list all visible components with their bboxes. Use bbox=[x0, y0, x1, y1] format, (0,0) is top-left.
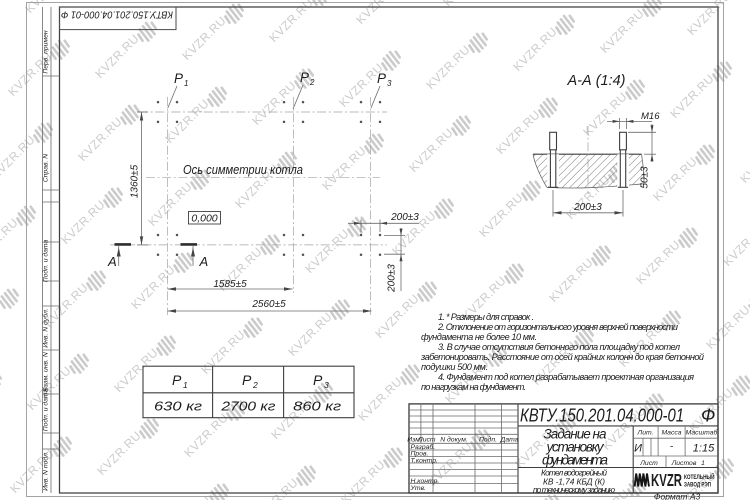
svg-text:KVZR.RU: KVZR.RU bbox=[720, 219, 750, 269]
svg-text:M16: M16 bbox=[641, 111, 660, 122]
svg-text:860 кг: 860 кг bbox=[293, 399, 342, 414]
svg-text:KVZR.RU: KVZR.RU bbox=[546, 255, 596, 305]
svg-text:ЗАВОД РЭП: ЗАВОД РЭП bbox=[684, 482, 711, 489]
svg-text:KVZR.RU: KVZR.RU bbox=[650, 154, 700, 204]
svg-text:фундамента: фундамента bbox=[542, 453, 608, 468]
svg-text:КВТУ.150.201.04.000-01: КВТУ.150.201.04.000-01 bbox=[520, 405, 684, 425]
svg-text:N докум.: N докум. bbox=[440, 435, 468, 443]
svg-text:Дата: Дата bbox=[500, 436, 519, 443]
svg-text:KVZR.RU: KVZR.RU bbox=[406, 125, 456, 175]
svg-text:1: 1 bbox=[701, 460, 705, 467]
svg-text:KVZR.RU: KVZR.RU bbox=[633, 237, 683, 287]
svg-text:KVZR.RU: KVZR.RU bbox=[684, 0, 734, 38]
svg-text:KVZR.RU: KVZR.RU bbox=[58, 197, 108, 247]
svg-text:КОТЕЛЬНЫЙ: КОТЕЛЬНЫЙ bbox=[684, 473, 715, 481]
svg-text:Формат А3: Формат А3 bbox=[654, 492, 701, 500]
svg-text:1585±5: 1585±5 bbox=[213, 279, 247, 290]
svg-text:3: 3 bbox=[324, 380, 329, 390]
svg-text:Т.контр.: Т.контр. bbox=[411, 457, 439, 464]
svg-text:3: 3 bbox=[387, 79, 392, 88]
svg-text:KVZR.RU: KVZR.RU bbox=[92, 31, 142, 81]
svg-text:Подп.: Подп. bbox=[479, 435, 497, 443]
svg-text:KVZR.RU: KVZR.RU bbox=[353, 0, 403, 27]
svg-text:по нагрузкам на фундамент.: по нагрузкам на фундамент. bbox=[421, 382, 526, 392]
svg-text:1:15: 1:15 bbox=[693, 443, 715, 455]
svg-text:KVZR.RU: KVZR.RU bbox=[179, 13, 229, 63]
svg-text:KVZR.RU: KVZR.RU bbox=[703, 302, 750, 352]
svg-text:А: А bbox=[199, 254, 209, 269]
svg-text:Ось симметрии котла: Ось симметрии котла bbox=[183, 163, 303, 177]
svg-text:KVZR.RU: KVZR.RU bbox=[128, 262, 178, 312]
svg-text:630 кг: 630 кг bbox=[154, 399, 203, 414]
svg-text:2. Отклонение от горизонтально: 2. Отклонение от горизонтального уровня … bbox=[437, 322, 678, 332]
svg-text:2700 кг: 2700 кг bbox=[220, 399, 276, 414]
svg-text:KVZR.RU: KVZR.RU bbox=[493, 107, 543, 157]
svg-text:KVZR.RU: KVZR.RU bbox=[319, 143, 369, 193]
svg-text:1: 1 bbox=[183, 380, 188, 390]
svg-text:Листов: Листов bbox=[671, 460, 697, 467]
svg-text:И: И bbox=[634, 443, 642, 455]
svg-text:Лист: Лист bbox=[639, 460, 658, 467]
svg-text:200±3: 200±3 bbox=[387, 264, 398, 293]
svg-text:фундамента не более 10 мм.: фундамента не более 10 мм. bbox=[421, 332, 537, 342]
svg-text:KVZR.RU: KVZR.RU bbox=[7, 446, 57, 496]
svg-text:Н.контр.: Н.контр. bbox=[411, 478, 440, 485]
svg-text:P: P bbox=[174, 71, 183, 86]
svg-text:по техническому заданию: по техническому заданию bbox=[533, 484, 616, 494]
svg-text:Масса: Масса bbox=[661, 430, 681, 437]
svg-text:KVZR.RU: KVZR.RU bbox=[94, 428, 144, 478]
svg-text:А: А bbox=[107, 254, 117, 269]
svg-text:3. В случае отсутствия бетонно: 3. В случае отсутствия бетонного пола пл… bbox=[438, 342, 680, 352]
svg-text:Подп. и дата: Подп. и дата bbox=[42, 240, 50, 283]
svg-text:KVZR.RU: KVZR.RU bbox=[145, 179, 195, 229]
svg-text:KVZR.RU: KVZR.RU bbox=[302, 226, 352, 276]
svg-text:Масштаб: Масштаб bbox=[686, 429, 719, 437]
svg-text:1. * Размеры для справок .: 1. * Размеры для справок . bbox=[438, 312, 534, 322]
svg-text:KVZR.RU: KVZR.RU bbox=[737, 136, 750, 186]
svg-text:2560±5: 2560±5 bbox=[251, 299, 286, 310]
svg-text:KVZR.RU: KVZR.RU bbox=[198, 327, 248, 377]
svg-text:KVZR.RU: KVZR.RU bbox=[0, 215, 21, 265]
svg-text:KVZR.RU: KVZR.RU bbox=[0, 132, 38, 182]
svg-text:2: 2 bbox=[309, 78, 315, 87]
svg-text:KVZR: KVZR bbox=[651, 470, 682, 490]
svg-text:Лит.: Лит. bbox=[637, 430, 654, 437]
svg-text:KVZR.RU: KVZR.RU bbox=[440, 0, 490, 9]
svg-text:2: 2 bbox=[252, 380, 258, 390]
svg-text:KVZR.RU: KVZR.RU bbox=[249, 78, 299, 128]
svg-text:KVZR.RU: KVZR.RU bbox=[597, 6, 647, 56]
svg-text:KVZR.RU: KVZR.RU bbox=[355, 374, 405, 424]
svg-text:Перв. примен: Перв. примен bbox=[43, 30, 50, 74]
svg-text:Ф: Ф bbox=[701, 405, 715, 425]
svg-text:200±3: 200±3 bbox=[573, 202, 602, 213]
svg-text:Утв.: Утв. bbox=[410, 485, 427, 492]
svg-text:Справ. N: Справ. N bbox=[43, 154, 50, 183]
svg-text:подушки 500 мм.: подушки 500 мм. bbox=[421, 362, 488, 372]
svg-text:P: P bbox=[313, 372, 323, 388]
svg-text:КВТУ.150.201.04.000-01 Ф: КВТУ.150.201.04.000-01 Ф bbox=[61, 8, 173, 20]
svg-text:KVZR.RU: KVZR.RU bbox=[510, 24, 560, 74]
svg-text:50±3: 50±3 bbox=[640, 166, 651, 189]
svg-text:KVZR.RU: KVZR.RU bbox=[423, 42, 473, 92]
svg-text:Инв. N дубл.: Инв. N дубл. bbox=[42, 308, 50, 347]
svg-text:Лист: Лист bbox=[417, 436, 436, 443]
svg-text:KVZR.RU: KVZR.RU bbox=[285, 309, 335, 359]
svg-text:1360±5: 1360±5 bbox=[130, 164, 141, 198]
svg-text:Взам. инв. N: Взам. инв. N bbox=[43, 352, 50, 392]
svg-text:KVZR.RU: KVZR.RU bbox=[476, 190, 526, 240]
svg-text:Инв. N подл.: Инв. N подл. bbox=[42, 451, 50, 491]
svg-text:P: P bbox=[172, 372, 182, 388]
svg-text:0,000: 0,000 bbox=[191, 213, 217, 225]
svg-text:KVZR.RU: KVZR.RU bbox=[372, 291, 422, 341]
svg-text:KVZR.RU: KVZR.RU bbox=[111, 345, 161, 395]
svg-text:Подп. и дата: Подп. и дата bbox=[42, 389, 50, 432]
svg-text:200±3: 200±3 bbox=[390, 212, 419, 223]
svg-text:1: 1 bbox=[184, 79, 188, 88]
svg-text:забетонировать. Расстояние от: забетонировать. Расстояние от осей крайн… bbox=[420, 352, 704, 362]
svg-text:KVZR.RU: KVZR.RU bbox=[75, 114, 125, 164]
svg-text:-: - bbox=[670, 442, 674, 453]
svg-text:P: P bbox=[377, 71, 386, 86]
svg-text:4. Фундамент под котел разраба: 4. Фундамент под котел разрабатывает про… bbox=[438, 372, 694, 382]
svg-text:А-А (1:4): А-А (1:4) bbox=[567, 72, 626, 89]
svg-text:P: P bbox=[300, 70, 309, 85]
svg-text:KVZR.RU: KVZR.RU bbox=[667, 71, 717, 121]
svg-text:P: P bbox=[242, 372, 252, 388]
